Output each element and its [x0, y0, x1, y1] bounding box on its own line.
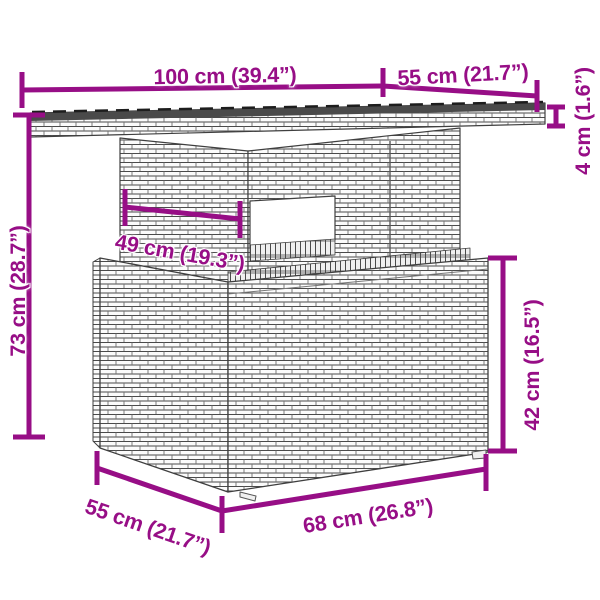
dim-label-top-thickness: 4 cm (1.6”): [570, 1, 596, 241]
dim-label-total-height: 73 cm (28.7”): [5, 171, 31, 411]
base-right-face: [228, 258, 488, 492]
dim-bracket-top-thickness: [547, 107, 565, 126]
pedestal-opening: [250, 196, 335, 247]
front-foot: [240, 492, 256, 501]
table-drawing: [30, 102, 545, 501]
base-front-face: [100, 258, 228, 492]
dim-label-base-height: 42 cm (16.5”): [519, 245, 545, 485]
dimension-diagram: 100 cm (39.4”) 55 cm (21.7”) 4 cm (1.6”)…: [0, 0, 600, 600]
base-left-sliver: [93, 258, 100, 448]
dim-label-top-width: 100 cm (39.4”): [105, 61, 345, 91]
